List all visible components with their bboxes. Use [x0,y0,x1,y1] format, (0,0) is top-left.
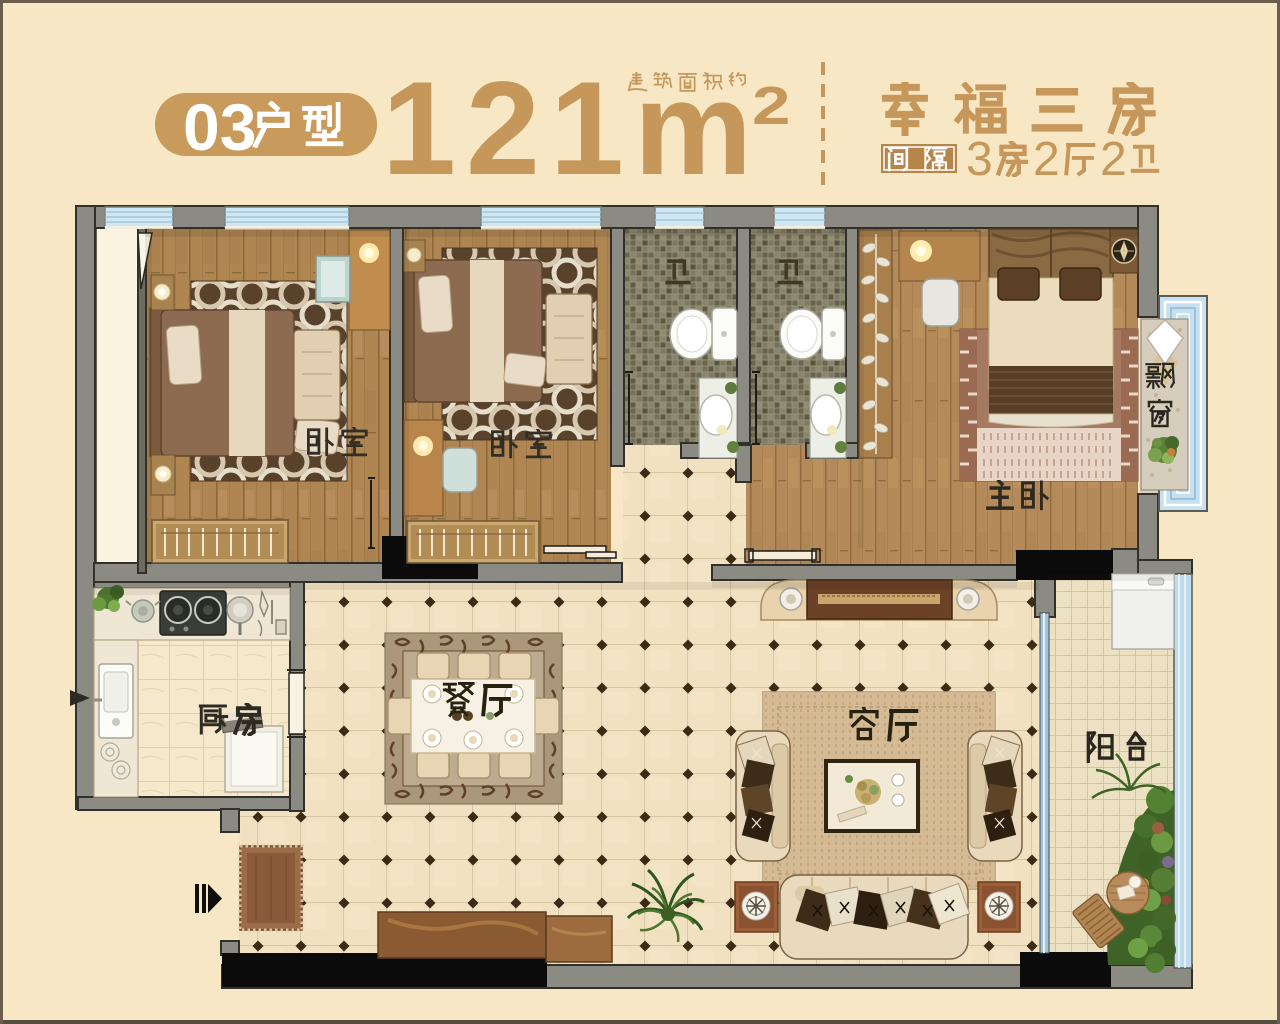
svg-text:03: 03 [183,90,256,164]
svg-text:3: 3 [966,133,993,186]
svg-text:121m: 121m [382,55,762,203]
svg-text:2: 2 [752,76,790,136]
svg-text:2: 2 [1033,133,1060,186]
svg-text:2: 2 [1100,133,1127,186]
